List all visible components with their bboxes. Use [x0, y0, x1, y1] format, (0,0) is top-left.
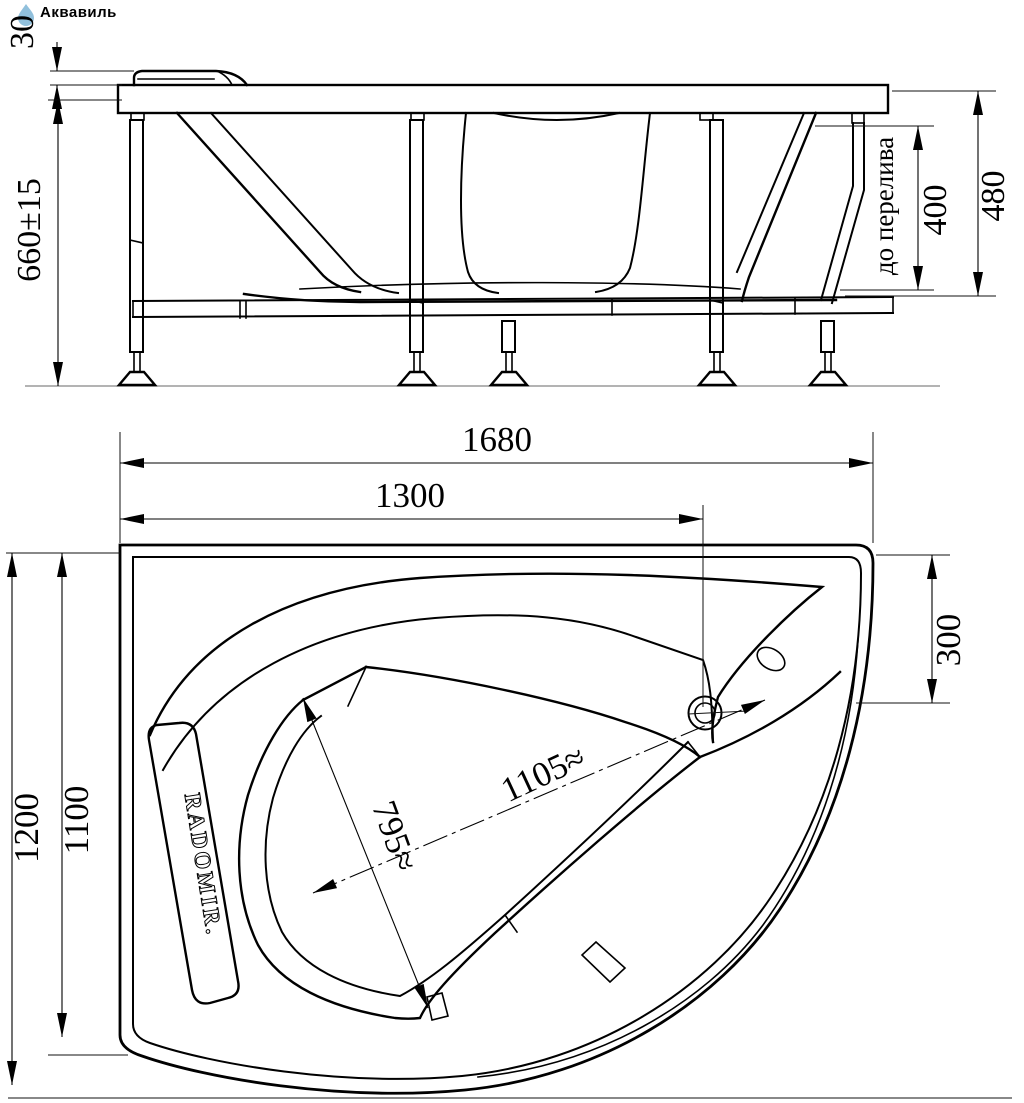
- head-end-wall-outer: [177, 113, 360, 292]
- technical-drawing-canvas: Аквавиль: [0, 0, 1024, 1103]
- dim-well-width: 795≈: [303, 698, 428, 1008]
- grip-notch: [582, 942, 625, 982]
- dim-label-1680: 1680: [462, 420, 532, 459]
- adjustable-feet: [119, 372, 846, 385]
- dim-label-480: 480: [975, 171, 1012, 222]
- bowl-right-wall: [596, 113, 650, 292]
- dim-floor-to-rim: 660±15: [11, 100, 122, 386]
- dim-label-300: 300: [929, 614, 968, 667]
- dim-label-1300: 1300: [375, 476, 445, 515]
- right-support-outer: [821, 123, 853, 300]
- dim-label-660: 660±15: [11, 178, 48, 282]
- watermark-label: Аквавиль: [40, 4, 117, 21]
- dim-label-1200: 1200: [7, 793, 46, 863]
- dim-label-400: 400: [917, 185, 954, 236]
- apron-seam: [478, 640, 858, 1077]
- bowl-bottom-inner: [300, 283, 740, 289]
- drawing-page: Аквавиль: [0, 0, 1024, 1103]
- head-end-wall-inner: [211, 113, 398, 293]
- right-support-inner: [832, 123, 864, 303]
- seat-wedge-edge: [303, 667, 366, 700]
- front-view: 30 660±15 480 400 до перелива: [4, 15, 1012, 386]
- well-outline: [239, 700, 700, 1019]
- rim-slab: [118, 85, 888, 113]
- dim-label-1105: 1105≈: [495, 737, 591, 810]
- dim-label-30: 30: [4, 15, 41, 49]
- dim-overall-width: 1200: [6, 553, 1012, 1098]
- dim-overflow-height: 400 до перелива: [815, 126, 954, 290]
- overflow-caption: до перелива: [869, 137, 899, 275]
- bowl-left-wall: [461, 113, 498, 293]
- pillow-brand-label: RADOMIR.: [180, 791, 227, 938]
- overflow-bracket: [852, 113, 864, 123]
- dim-label-1100: 1100: [57, 786, 96, 855]
- tub-outer-contour: [120, 545, 873, 1093]
- dim-headrest-height: 30: [4, 15, 134, 118]
- frame-legs: [130, 120, 834, 372]
- dim-overall-length: 1680: [120, 420, 873, 543]
- backrest-edge-inner: [163, 615, 713, 770]
- well-step-inner: [266, 716, 688, 996]
- foot-end-wall-outer: [742, 113, 816, 301]
- grip-notch: [427, 993, 448, 1020]
- dim-label-795: 795≈: [364, 796, 425, 877]
- dim-inner-width: 1100: [48, 553, 128, 1055]
- plan-view: RADOMIR. 1680 1300 1200 1100: [6, 420, 1012, 1098]
- well-top-edge: [366, 667, 700, 757]
- dim-well-diagonal: 1105≈: [313, 700, 765, 893]
- foot-end-wall-inner: [737, 113, 804, 272]
